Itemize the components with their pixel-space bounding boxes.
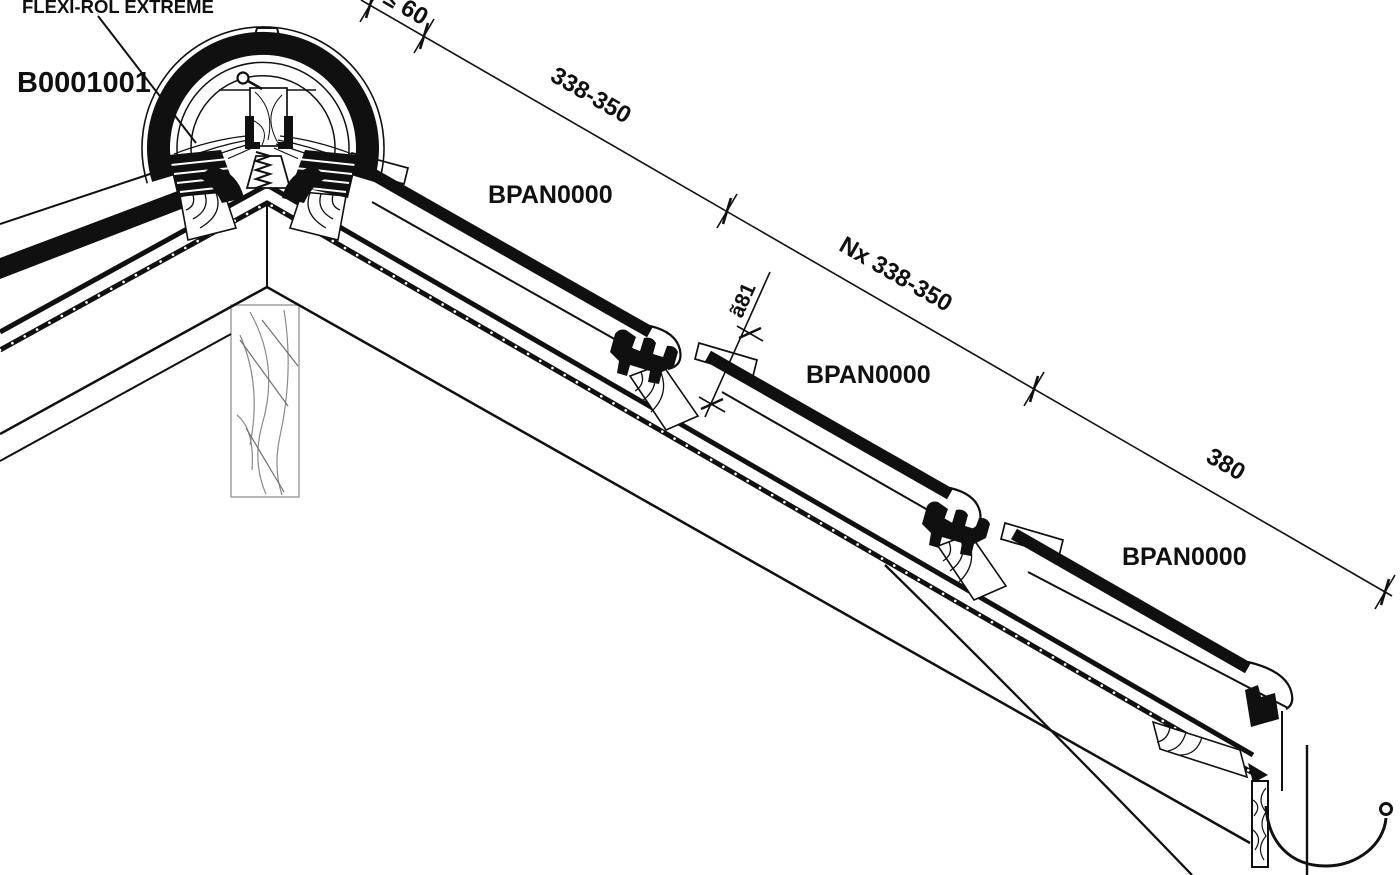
sarking-fastener-line [0,203,1258,776]
dimension-headlap: ã81 [699,272,770,417]
dim-label-eaves-spacing: 380 [1202,443,1250,486]
ridge-screw [238,73,263,90]
dim-ticks [360,0,1395,609]
fascia-board [1252,781,1268,867]
label-pan-tile-2: BPAN0000 [806,361,931,389]
label-ridge-tile-code: B0001001 [17,67,151,99]
label-flexi-rol: FLEXI-ROL EXTREME [22,0,214,17]
label-pan-tile-1: BPAN0000 [488,181,613,209]
dim-label-first-spacing: 338-350 [546,62,636,129]
sarking-underside-left [0,334,231,461]
eaves-batten [1153,722,1247,777]
ridge-batten [250,88,287,146]
ridge-post [231,305,299,497]
sarking-top-edge [0,185,1253,755]
tile3-underside [1028,572,1288,708]
annotations: FLEXI-ROL EXTREME B0001001 BPAN0000 BPAN… [17,0,1247,571]
dim-label-repeat-spacing: Nx 338-350 [835,231,957,317]
dimension-line-main: ≤ 60 338-350 Nx 338-350 380 [360,0,1395,609]
sarking-panels [0,185,1258,875]
eaves-detail [1153,711,1392,875]
gutter-bracket [1266,804,1392,867]
roof-ridge-section-drawing: ≤ 60 338-350 Nx 338-350 380 ã81 FLEXI-RO… [0,0,1400,875]
pan-tiles [348,153,1292,727]
dim-label-headlap: ã81 [725,279,760,321]
fastener-dots [0,203,1258,776]
label-pan-tile-3: BPAN0000 [1122,543,1247,571]
technical-drawing-svg: ≤ 60 338-350 Nx 338-350 380 ã81 FLEXI-RO… [0,0,1400,875]
tile3-under-hook [1245,685,1279,727]
